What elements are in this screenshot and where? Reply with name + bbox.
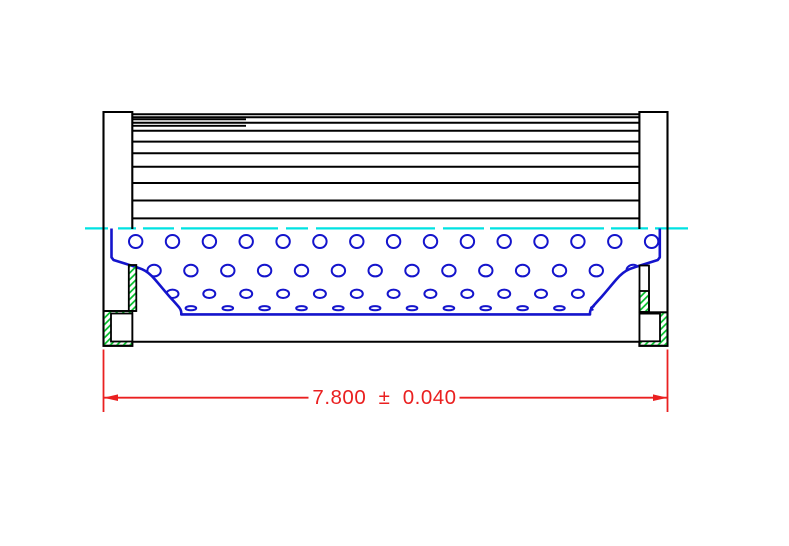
svg-text:7.800 ± 0.040: 7.800 ± 0.040 <box>312 386 456 409</box>
